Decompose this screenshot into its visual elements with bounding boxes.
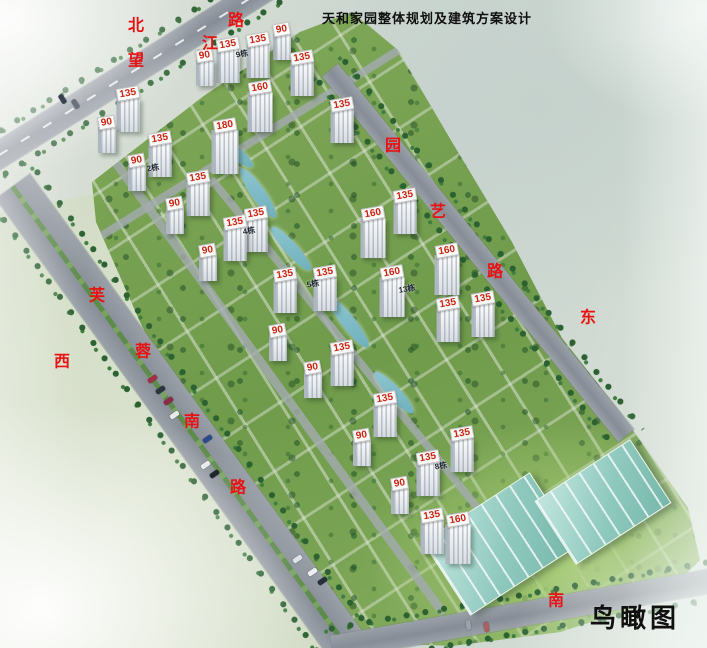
road-name-char: 艺 bbox=[430, 204, 446, 221]
building-marker: 90 bbox=[391, 477, 409, 514]
building-marker: 90 bbox=[269, 324, 287, 361]
block-number-label: 4栋 bbox=[242, 225, 256, 238]
road-name-char: 芙 bbox=[89, 288, 105, 305]
building-marker: 135 bbox=[187, 171, 210, 216]
building-marker: 160 bbox=[435, 244, 460, 295]
road-name-char: 路 bbox=[230, 480, 246, 497]
building-tower bbox=[394, 200, 417, 234]
building-marker: 160 bbox=[361, 207, 386, 258]
building-marker: 90 bbox=[196, 49, 214, 86]
building-tower bbox=[331, 352, 354, 386]
building-tower bbox=[117, 98, 140, 132]
building-tower bbox=[380, 277, 405, 317]
compass-marker: 东 bbox=[580, 310, 596, 327]
building-marker: 135 bbox=[437, 297, 460, 342]
building-tower bbox=[199, 255, 217, 281]
building-marker: 135 bbox=[274, 268, 297, 313]
road-name-char: 路 bbox=[228, 13, 244, 30]
building-tower bbox=[391, 488, 409, 514]
building-tower bbox=[421, 520, 444, 554]
drawing-title: 天和家园整体规划及建筑方案设计 bbox=[322, 8, 532, 27]
building-tower bbox=[435, 255, 460, 295]
compass-marker: 西 bbox=[54, 354, 70, 371]
building-tower bbox=[374, 403, 397, 437]
building-tower bbox=[451, 438, 474, 472]
building-marker: 90 bbox=[98, 116, 116, 153]
building-tower bbox=[437, 308, 460, 342]
road-name-char: 江 bbox=[202, 36, 218, 53]
building-tower bbox=[273, 34, 291, 60]
building-marker: 135 bbox=[331, 98, 354, 143]
building-marker: 135 bbox=[247, 33, 270, 78]
building-marker: 90 bbox=[273, 23, 291, 60]
road-name-char: 蓉 bbox=[135, 344, 151, 361]
building-tower bbox=[446, 524, 471, 564]
building-tower bbox=[247, 44, 270, 78]
building-tower bbox=[166, 208, 184, 234]
building-tower bbox=[304, 372, 322, 398]
building-marker: 135 bbox=[224, 216, 247, 261]
building-tower bbox=[361, 218, 386, 258]
building-tower bbox=[274, 279, 297, 313]
building-marker: 90 bbox=[166, 197, 184, 234]
building-marker: 90 bbox=[353, 429, 371, 466]
building-tower bbox=[353, 440, 371, 466]
block-number-label: 8栋 bbox=[434, 460, 448, 473]
building-tower bbox=[212, 130, 239, 174]
block-number-label: 2栋 bbox=[146, 162, 160, 175]
building-marker: 90 bbox=[199, 244, 217, 281]
building-marker: 135 bbox=[421, 509, 444, 554]
compass-marker: 南 bbox=[548, 593, 564, 610]
building-marker: 90 bbox=[128, 154, 146, 191]
building-tower bbox=[196, 60, 214, 86]
building-marker: 160 bbox=[248, 81, 273, 132]
building-marker: 135 bbox=[291, 51, 314, 96]
road-name-char: 园 bbox=[385, 138, 401, 155]
view-type-label: 鸟瞰图 bbox=[590, 598, 680, 635]
building-tower bbox=[331, 109, 354, 143]
compass-marker: 北 bbox=[128, 18, 144, 35]
road-name-char: 望 bbox=[128, 53, 144, 70]
block-number-label: 5栋 bbox=[306, 278, 320, 291]
building-tower bbox=[269, 335, 287, 361]
building-marker: 180 bbox=[212, 119, 239, 174]
building-tower bbox=[248, 92, 273, 132]
building-tower bbox=[472, 303, 495, 337]
block-number-label: 9栋 bbox=[235, 48, 249, 61]
building-marker: 90 bbox=[304, 361, 322, 398]
building-marker: 135 bbox=[472, 292, 495, 337]
building-marker: 135 bbox=[451, 427, 474, 472]
rendering-canvas: 9013513590135160135135901801359013590135… bbox=[0, 0, 707, 648]
building-tower bbox=[187, 182, 210, 216]
building-marker: 135 bbox=[374, 392, 397, 437]
building-tower bbox=[98, 127, 116, 153]
building-marker: 135 bbox=[117, 87, 140, 132]
building-marker: 135 bbox=[331, 341, 354, 386]
building-marker: 160 bbox=[446, 513, 471, 564]
building-tower bbox=[128, 165, 146, 191]
building-marker: 135 bbox=[417, 451, 440, 496]
building-tower bbox=[291, 62, 314, 96]
building-marker: 135 bbox=[394, 189, 417, 234]
road-name-char: 路 bbox=[487, 264, 503, 281]
road-name-char: 南 bbox=[184, 414, 200, 431]
